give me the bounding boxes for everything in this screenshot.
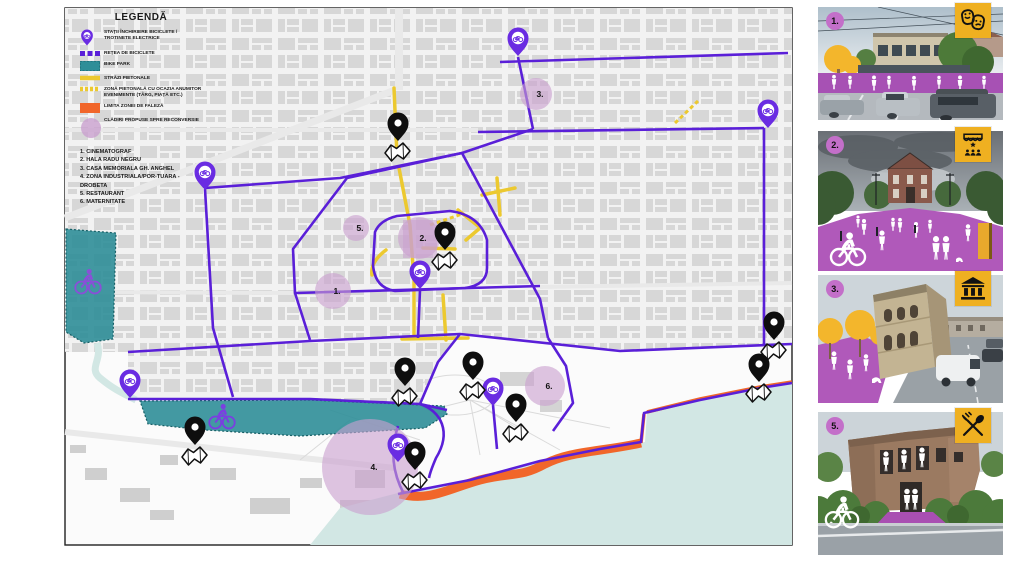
reconversion-circle-label: 4. [370, 462, 377, 472]
panel-number-badge: 2. [826, 136, 844, 154]
museum-icon [955, 271, 991, 306]
legend-item-bike-park: BIKE PARK [80, 61, 202, 71]
legend-item-event-zone: ZONĂ PIETONALĂ CU OCAZIA ANUMITOR EVENIM… [80, 86, 202, 99]
poi-list-item: 5. RESTAURANT [80, 190, 188, 198]
urban-mobility-poster: 1.2.3.4.5.6. LEGENDĂ STAȚII ÎNCHIRIERE B… [0, 0, 1024, 562]
legend-title: LEGENDĂ [80, 12, 202, 23]
poi-list-item: 4. ZONA INDUSTRIALA/POR-TUARA - DROBETA [80, 173, 188, 190]
legend-item-pedestrian-streets: STRĂZI PIETONALE [80, 75, 202, 82]
event-pedestrian-zone-icon [80, 86, 104, 92]
poi-list-item: 3. CASA MEMORIALA GH. ANGHEL [80, 165, 188, 173]
faleza-zone-swatch-icon [80, 103, 104, 113]
legend-item-reconversion: CLĂDIRI PROPUSE SPRE RECONVERSIE [80, 117, 202, 139]
photo-panel-cinema: 1. [818, 7, 1003, 120]
market-stall-icon [955, 127, 991, 162]
fork-spoon-icon [955, 408, 991, 443]
legend-item-faleza-limit: LIMITA ZONEI DE FALEZĂ [80, 103, 202, 113]
poi-numbered-list: 1. CINEMATOGRAF 2. HALA RADU NEGRU 3. CA… [80, 148, 188, 207]
reconversion-circle-label: 5. [356, 223, 363, 233]
panel-number-badge: 1. [826, 12, 844, 30]
bike-network-line-icon [80, 50, 104, 57]
reconversion-circle-label: 1. [333, 286, 340, 296]
panel-number-badge: 3. [826, 280, 844, 298]
reconversion-circle-label: 6. [545, 381, 552, 391]
photo-panel-restaurant: 5. [818, 412, 1003, 555]
legend-item-bike-network: REȚEA DE BICICLETE [80, 50, 202, 57]
theater-masks-icon [955, 3, 991, 38]
legend-item-bike-stations: STAȚII ÎNCHIRIERE BICICLETE / TROTINETE … [80, 29, 202, 46]
bike-station-pin-icon [80, 29, 104, 46]
reconversion-circle-label: 2. [419, 233, 426, 243]
legend: LEGENDĂ STAȚII ÎNCHIRIERE BICICLETE / TR… [80, 12, 202, 207]
reconversion-circle-label: 3. [536, 89, 543, 99]
photo-panel-memorial-house: 3. [818, 275, 1003, 403]
poi-list-item: 1. CINEMATOGRAF [80, 148, 188, 156]
pedestrian-street-line-icon [80, 75, 104, 81]
panel-number-badge: 5. [826, 417, 844, 435]
reconversion-circle-icon [80, 117, 104, 139]
poi-list-item: 2. HALA RADU NEGRU [80, 156, 188, 164]
photo-panel-market-hall: 2. [818, 131, 1003, 271]
bike-park-swatch-icon [80, 61, 104, 71]
poi-list-item: 6. MATERNITATE [80, 198, 188, 206]
